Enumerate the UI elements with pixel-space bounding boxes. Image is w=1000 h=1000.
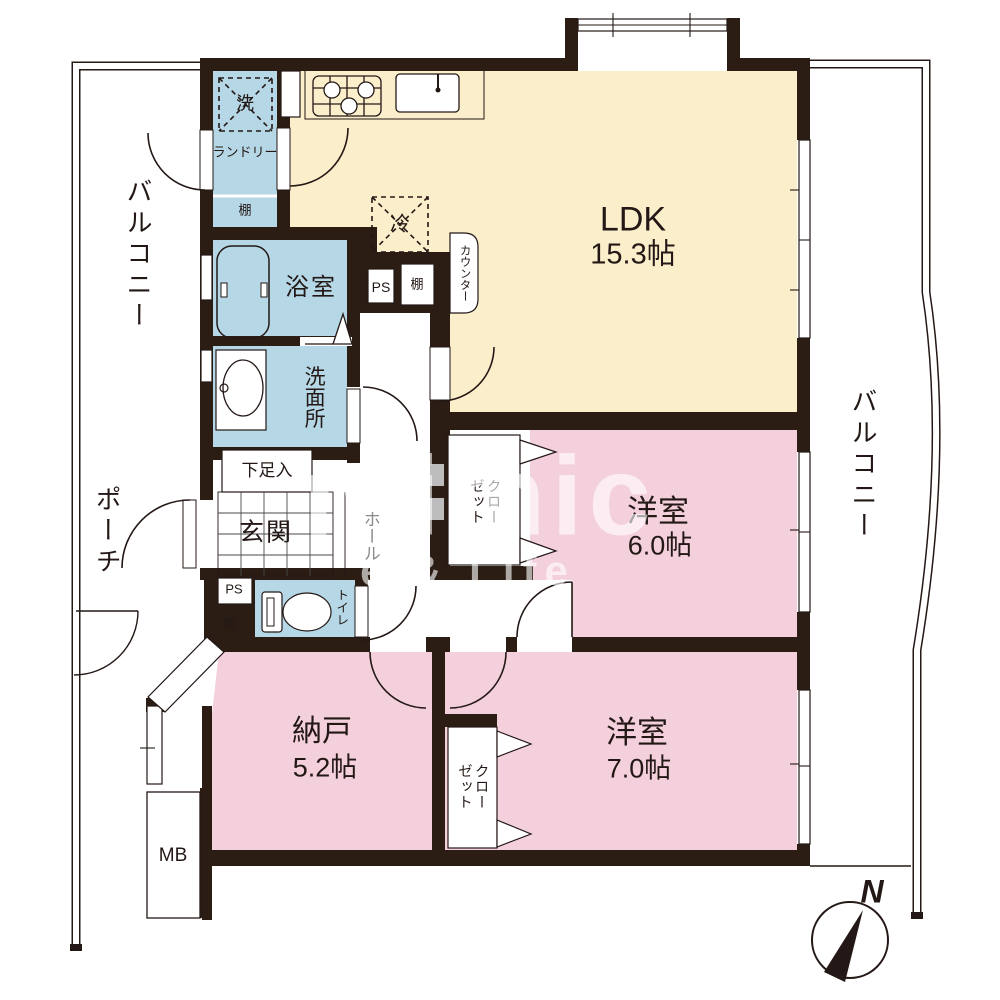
floor-plan: バルコニー バルコニー ポーチ 洗 ランドリー 棚 浴室 洗面所 PS 棚 カウ… xyxy=(0,0,1000,1000)
balcony-left-label: バルコニー xyxy=(122,178,152,333)
western7-name: 洋室 xyxy=(606,715,668,751)
ldk-area: 15.3帖 xyxy=(590,238,675,271)
kitchen-partition xyxy=(281,71,300,117)
ldk-window xyxy=(799,140,810,338)
laundry-ldk-door xyxy=(277,128,290,190)
shelf-kitchen-label: 棚 xyxy=(410,278,423,293)
hall-ldk-door xyxy=(430,347,450,400)
washroom-window xyxy=(201,350,212,382)
toilet-icon xyxy=(262,592,331,632)
toilet-label: トイレ xyxy=(334,588,348,626)
counter-label: カウンター xyxy=(457,244,470,302)
balcony-right-label: バルコニー xyxy=(847,388,877,543)
shelf-laundry-label: 棚 xyxy=(238,204,251,219)
ldk-name: LDK xyxy=(600,200,666,239)
closet7-col-left: ゼット xyxy=(455,764,472,811)
genkan-label: 玄関 xyxy=(239,519,293,548)
storage-window xyxy=(147,706,162,784)
laundry-balcony-door xyxy=(200,130,213,190)
fridge-label: 冷 xyxy=(390,214,410,237)
door-openings xyxy=(370,637,572,652)
bath-window xyxy=(201,255,212,300)
storage-diagonal-window xyxy=(148,637,224,712)
shelf-toilet-label: 棚 xyxy=(223,617,236,631)
ps-kitchen-label: PS xyxy=(372,279,391,295)
porch-gate-arc xyxy=(74,611,138,675)
entrance-door xyxy=(183,500,196,568)
washer-label: 洗 xyxy=(236,94,254,115)
storage-floor xyxy=(212,652,432,850)
watermark-tagline: e & Life xyxy=(360,547,576,595)
closet-western7-label: クロー ゼット xyxy=(455,764,488,811)
sink-icon xyxy=(396,74,459,112)
porch-label: ポーチ xyxy=(91,486,121,579)
north-label: N xyxy=(860,874,883,911)
western7-area: 7.0帖 xyxy=(607,753,672,784)
storage-name: 納戸 xyxy=(292,715,352,750)
bath-label: 浴室 xyxy=(285,274,337,302)
laundry-label: ランドリー xyxy=(212,146,277,161)
compass-icon xyxy=(812,902,888,982)
closet7-col-right: クロー xyxy=(472,764,489,811)
porch-boundary xyxy=(74,611,138,675)
washstand-icon xyxy=(216,350,266,430)
storage-area: 5.2帖 xyxy=(293,752,358,783)
western7-window xyxy=(799,690,810,844)
ps-toilet-label: PS xyxy=(225,583,242,598)
washroom-label: 洗面所 xyxy=(301,366,325,429)
meter-box-label: MB xyxy=(159,845,188,867)
watermark-logo: mimic xyxy=(303,433,657,562)
shoe-box-label: 下足入 xyxy=(242,461,293,481)
